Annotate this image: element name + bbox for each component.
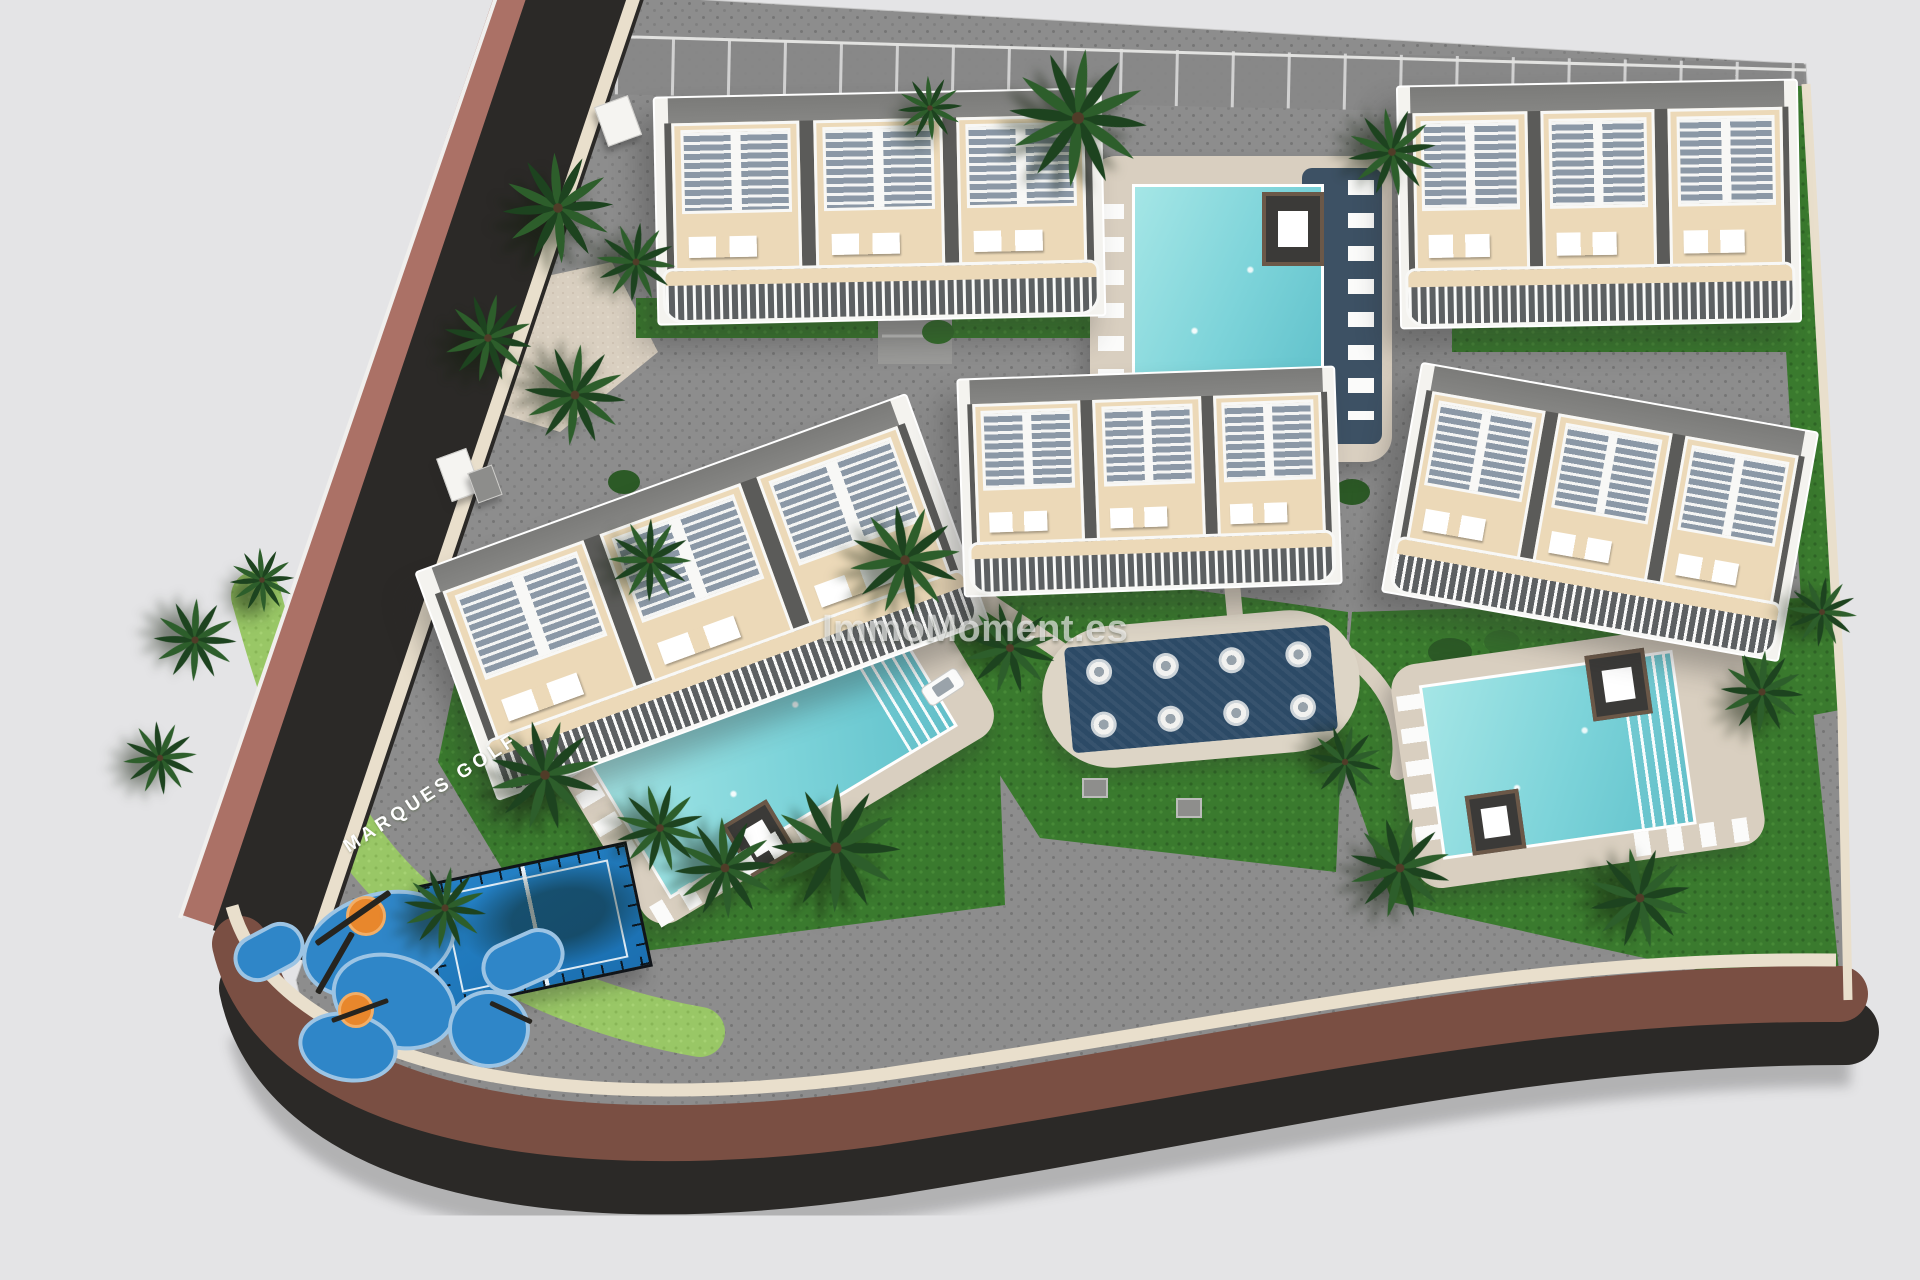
building-2 [1396, 79, 1802, 330]
terrace-unit [1659, 436, 1799, 606]
in-water-seat [1156, 704, 1184, 732]
pool-cabana [1465, 789, 1527, 856]
palm-tree [227, 545, 297, 615]
in-water-seat [1151, 651, 1179, 679]
terrace-unit [1406, 391, 1546, 561]
palm-tree [760, 772, 912, 924]
terrace-unit [1540, 109, 1657, 269]
palm-tree [895, 73, 965, 143]
balcony-band [1405, 262, 1796, 328]
balcony-band [663, 259, 1100, 324]
watermark: ImmoMoment.es [822, 608, 1128, 651]
terrace-unit [1093, 396, 1206, 542]
terrace-unit [1532, 414, 1672, 584]
pool-cabana [1584, 648, 1653, 722]
in-water-seat [1222, 698, 1250, 726]
terrace-unit [1668, 107, 1785, 267]
sun-loungers [1348, 180, 1374, 420]
terrace-unit [1213, 392, 1326, 538]
in-water-seat [1289, 693, 1317, 721]
palm-tree [991, 31, 1165, 205]
in-water-seat [1085, 657, 1113, 685]
bench [1082, 778, 1108, 798]
in-water-seat [1090, 710, 1118, 738]
site-plan-render: ImmoMoment.es MARQUES GOLF [0, 0, 1920, 1280]
terrace-unit [972, 400, 1085, 546]
terrace-unit [671, 120, 802, 271]
palm-tree [392, 855, 499, 962]
bench [1176, 798, 1202, 818]
in-water-seat [1218, 646, 1246, 674]
play-surface [448, 990, 530, 1068]
building-4 [956, 365, 1342, 597]
roof-terraces [1406, 107, 1791, 272]
palm-tree [1711, 641, 1813, 743]
roof-terraces [967, 391, 1332, 545]
pool-cabana [1262, 192, 1324, 266]
in-water-seat [1284, 640, 1312, 668]
